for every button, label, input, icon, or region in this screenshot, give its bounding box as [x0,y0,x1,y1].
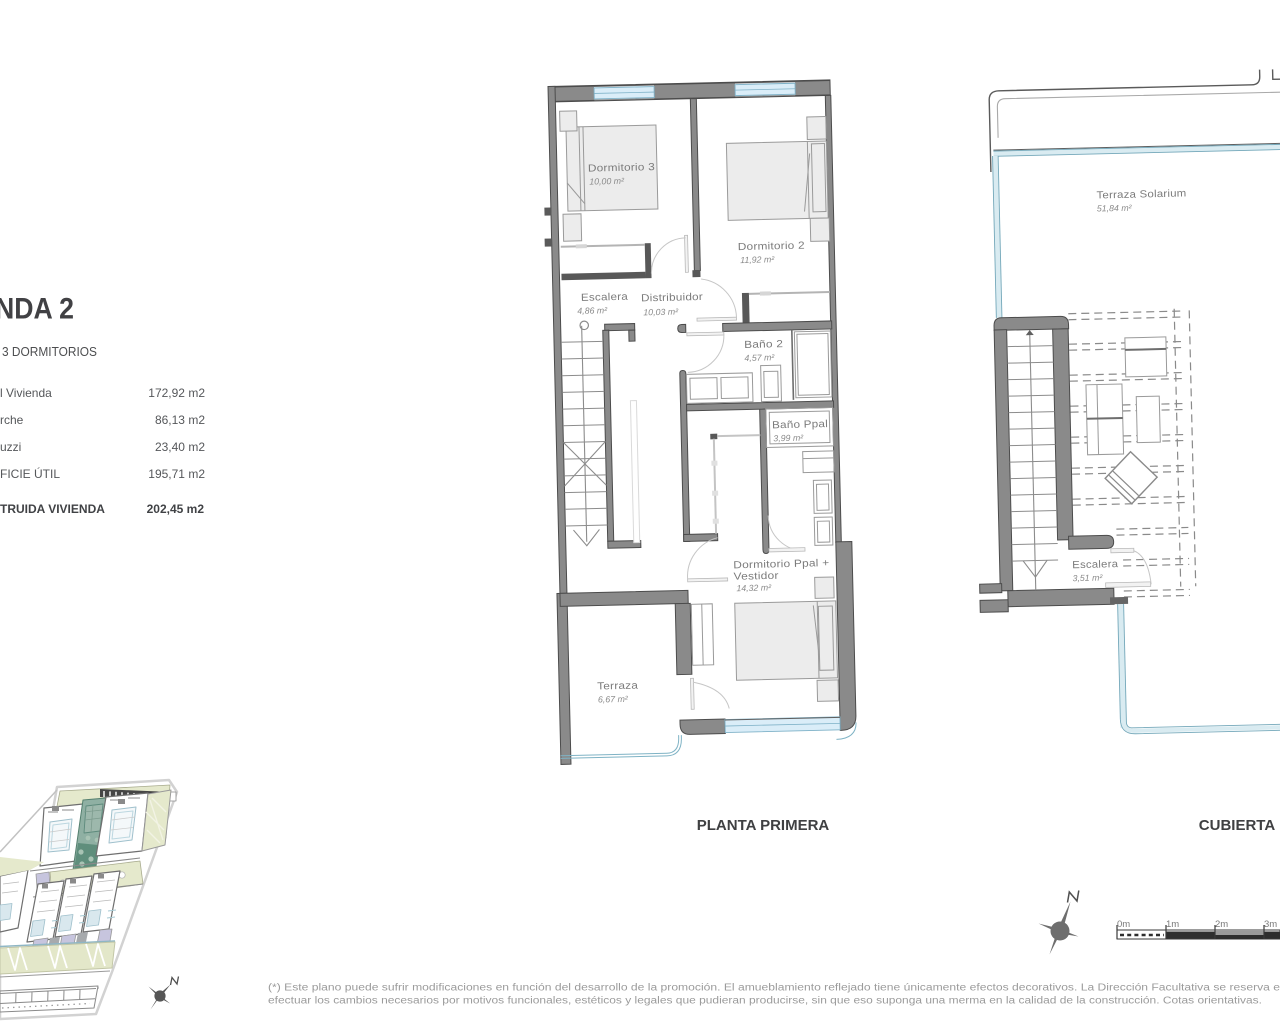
svg-text:10,03 m²: 10,03 m² [643,307,679,318]
svg-text:3m: 3m [1264,919,1277,930]
svg-text:4,86 m²: 4,86 m² [577,305,608,316]
svg-text:Baño Ppal: Baño Ppal [772,419,828,431]
svg-text:CUBIERTA: CUBIERTA [1199,817,1276,834]
svg-text:Dormitorio 2: Dormitorio 2 [738,241,805,254]
svg-text:Distribuidor: Distribuidor [641,292,704,304]
svg-text:3 DORMITORIOS: 3 DORMITORIOS [2,344,97,359]
svg-text:2m: 2m [1215,919,1228,930]
svg-text:Terraza: Terraza [597,681,638,693]
svg-text:3,51 m²: 3,51 m² [1072,572,1103,583]
svg-text:Vestidor: Vestidor [733,571,779,583]
svg-text:0m: 0m [1117,919,1130,930]
svg-text:TRUIDA VIVIENDA: TRUIDA VIVIENDA [0,502,105,516]
svg-text:4,57 m²: 4,57 m² [744,352,775,363]
svg-text:uzzi: uzzi [0,440,21,454]
svg-text:NDA 2: NDA 2 [0,293,74,326]
svg-text:Escalera: Escalera [1072,559,1118,571]
svg-text:86,13 m2: 86,13 m2 [155,413,205,427]
svg-text:195,71 m2: 195,71 m2 [148,467,205,481]
svg-text:Dormitorio 3: Dormitorio 3 [588,162,655,175]
svg-text:3,99 m²: 3,99 m² [773,433,804,444]
svg-text:14,32 m²: 14,32 m² [736,582,772,593]
svg-text:PLANTA PRIMERA: PLANTA PRIMERA [697,817,830,834]
svg-text:202,45 m2: 202,45 m2 [147,502,205,516]
svg-text:efectuar los cambios necesario: efectuar los cambios necesarios por moti… [268,996,1262,1007]
svg-text:Dormitorio Ppal +: Dormitorio Ppal + [733,558,829,571]
svg-text:Baño 2: Baño 2 [744,339,783,351]
svg-text:Escalera: Escalera [581,292,628,304]
svg-text:(*) Este plano puede sufrir mo: (*) Este plano puede sufrir modificacion… [268,983,1280,994]
svg-text:11,92 m²: 11,92 m² [740,254,775,265]
svg-text:FICIE ÚTIL: FICIE ÚTIL [0,466,60,481]
svg-text:rche: rche [0,413,24,427]
svg-text:23,40 m2: 23,40 m2 [155,440,205,454]
svg-text:10,00 m²: 10,00 m² [589,176,625,187]
svg-text:6,67 m²: 6,67 m² [598,694,629,705]
svg-text:Terraza Solarium: Terraza Solarium [1096,188,1186,201]
svg-text:172,92 m2: 172,92 m2 [148,386,205,400]
svg-text:51,84 m²: 51,84 m² [1097,203,1133,214]
svg-text:1m: 1m [1166,919,1179,930]
svg-text:l Vivienda: l Vivienda [0,386,52,400]
